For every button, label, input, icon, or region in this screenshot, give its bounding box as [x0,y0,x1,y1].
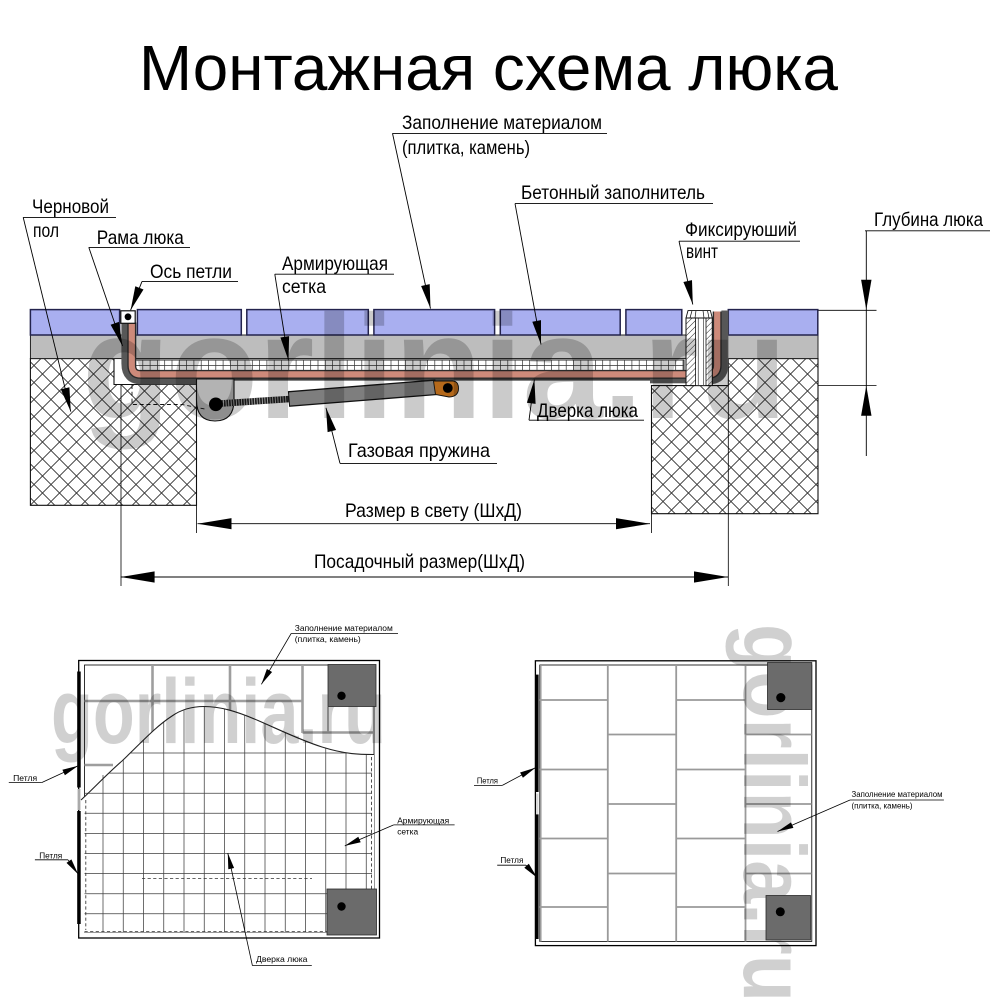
svg-text:Армирующая: Армирующая [282,253,388,275]
svg-text:Посадочный размер(ШхД): Посадочный размер(ШхД) [314,551,525,573]
svg-text:Монтажная схема люка: Монтажная схема люка [139,32,838,104]
svg-text:Ось петли: Ось петли [150,261,232,283]
svg-text:Армирующая: Армирующая [397,816,449,826]
svg-text:Глубина люка: Глубина люка [874,209,983,231]
svg-text:пол: пол [33,220,59,242]
svg-text:Заполнение материалом: Заполнение материалом [852,789,943,799]
svg-text:Заполнение материалом: Заполнение материалом [295,623,393,633]
svg-text:Фиксируюший: Фиксируюший [685,219,797,241]
svg-text:Размер в свету (ШхД): Размер в свету (ШхД) [345,500,522,522]
svg-text:винт: винт [686,241,718,263]
svg-text:Петля: Петля [477,775,498,785]
svg-text:сетка: сетка [397,827,418,837]
svg-text:Дверка люка: Дверка люка [537,400,638,422]
svg-text:сетка: сетка [282,276,326,298]
svg-text:Петля: Петля [13,773,37,783]
svg-text:gorlinia.ru: gorlinia.ru [82,285,787,450]
svg-text:(плитка, камень): (плитка, камень) [295,634,361,644]
svg-text:Заполнение материалом: Заполнение материалом [402,112,602,134]
svg-text:Петля: Петля [500,855,523,865]
svg-text:Рама люка: Рама люка [97,227,184,249]
svg-text:Петля: Петля [39,850,62,860]
svg-text:Бетонный заполнитель: Бетонный заполнитель [521,182,705,204]
svg-text:(плитка, камень): (плитка, камень) [402,137,530,159]
svg-text:Черновой: Черновой [32,196,109,218]
svg-text:Дверка люка: Дверка люка [256,954,308,964]
svg-text:Газовая пружина: Газовая пружина [348,440,490,462]
svg-text:(плитка, камень): (плитка, камень) [852,800,913,810]
